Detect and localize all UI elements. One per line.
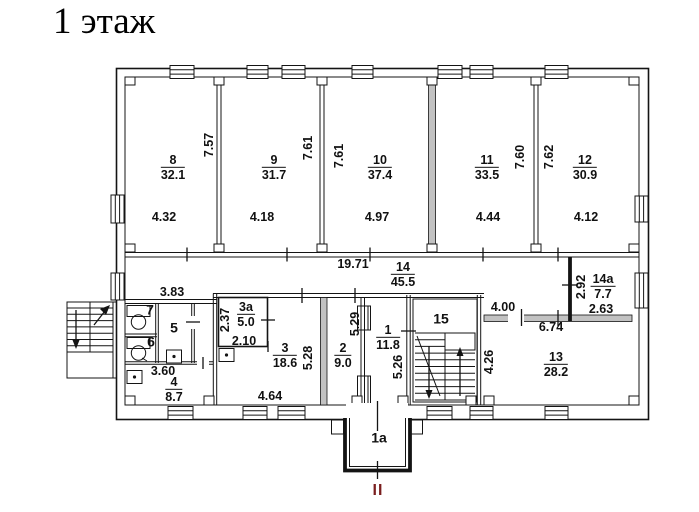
room-area: 33.5	[475, 168, 499, 183]
room-area: 18.6	[273, 356, 297, 371]
room-number: 13	[544, 350, 568, 365]
room-15-label: 15	[433, 311, 449, 326]
room-area: 5.0	[237, 315, 255, 330]
room-number: 12	[573, 153, 597, 168]
dim-room3-depth: 5.28	[302, 346, 316, 370]
dim-room10-width: 4.97	[365, 211, 389, 225]
room-area: 11.8	[376, 338, 400, 353]
room-number: 14а	[591, 272, 616, 287]
room-number: 3а	[237, 300, 255, 315]
room-number: 2	[334, 341, 351, 356]
duct-icon	[127, 371, 142, 384]
duct-icon	[219, 349, 234, 362]
room-3a-label: 3а 5.0	[237, 300, 255, 330]
room-8-label: 8 32.1	[161, 153, 185, 183]
room-area: 9.0	[334, 356, 351, 371]
dim-room3a-width: 2.10	[232, 335, 256, 349]
dim-room13-offset: 4.00	[491, 301, 515, 315]
room-number: 3	[273, 341, 297, 356]
room-7-label: 7	[146, 302, 154, 317]
room-area: 28.2	[544, 365, 568, 380]
room-5-label: 5	[170, 320, 178, 335]
room-number: 11	[475, 153, 499, 168]
dim-room12-depth: 7.62	[543, 145, 557, 169]
room-14a-label: 14а 7.7	[591, 272, 616, 302]
dim-room3-width: 4.64	[258, 390, 282, 404]
dim-room3a-depth: 2.37	[219, 308, 233, 332]
corridor-walls	[125, 253, 639, 323]
dim-room13-depth: 4.26	[483, 350, 497, 374]
room-area: 30.9	[573, 168, 597, 183]
dim-room11-depth: 7.60	[514, 145, 528, 169]
room-9-label: 9 31.7	[262, 153, 286, 183]
room-4-label: 4 8.7	[165, 375, 182, 405]
room-area: 32.1	[161, 168, 185, 183]
room-area: 7.7	[591, 287, 616, 302]
exterior-stairs-icon	[67, 302, 117, 378]
dim-room8-depth: 7.57	[203, 133, 217, 157]
dim-room10-depth: 7.61	[333, 144, 347, 168]
dim-room9-width: 4.18	[250, 211, 274, 225]
dim-room12-width: 4.12	[574, 211, 598, 225]
room-area: 45.5	[391, 275, 415, 290]
dim-room8-width: 4.32	[152, 211, 176, 225]
dim-room9-depth: 7.61	[302, 136, 316, 160]
down-arrow-icon	[73, 310, 80, 349]
duct-icon	[167, 350, 182, 363]
vestibule-label: 1а	[371, 430, 387, 445]
room-number: 14	[391, 260, 415, 275]
room-number: 4	[165, 375, 182, 390]
window-icons-left	[111, 195, 124, 300]
floor-plan: 1 этаж 8 32.1 7.57 4.32 9 31.7 7.61 4.18…	[0, 0, 699, 512]
room-number: 8	[161, 153, 185, 168]
dim-block-width: 3.83	[160, 286, 184, 300]
dim-room1-depth: 5.26	[392, 355, 406, 379]
dim-room11-width: 4.44	[476, 211, 500, 225]
room-3-label: 3 18.6	[273, 341, 297, 371]
exterior-wall	[117, 69, 649, 420]
room-number: 1	[376, 323, 400, 338]
dim-room14a-depth: 2.92	[575, 275, 589, 299]
room-10-label: 10 37.4	[368, 153, 392, 183]
room-14-label: 14 45.5	[391, 260, 415, 290]
entrance-mark: II	[373, 482, 384, 500]
room-area: 37.4	[368, 168, 392, 183]
room-area: 31.7	[262, 168, 286, 183]
room-2-label: 2 9.0	[334, 341, 351, 371]
plan-linework	[0, 0, 699, 512]
room-6-label: 6	[147, 334, 155, 349]
dim-corridor-length: 19.71	[337, 258, 368, 272]
room-number: 9	[262, 153, 286, 168]
room-number: 10	[368, 153, 392, 168]
dim-room13-width: 6.74	[539, 321, 563, 335]
up-arrow-icon	[457, 347, 464, 396]
dim-room2-depth: 5.29	[349, 312, 363, 336]
room-12-label: 12 30.9	[573, 153, 597, 183]
dim-room14a-width: 2.63	[589, 303, 613, 317]
room-11-label: 11 33.5	[475, 153, 499, 183]
room-13-label: 13 28.2	[544, 350, 568, 380]
plan-title: 1 этаж	[53, 0, 155, 43]
room-area: 8.7	[165, 390, 182, 405]
room-1-label: 1 11.8	[376, 323, 400, 353]
